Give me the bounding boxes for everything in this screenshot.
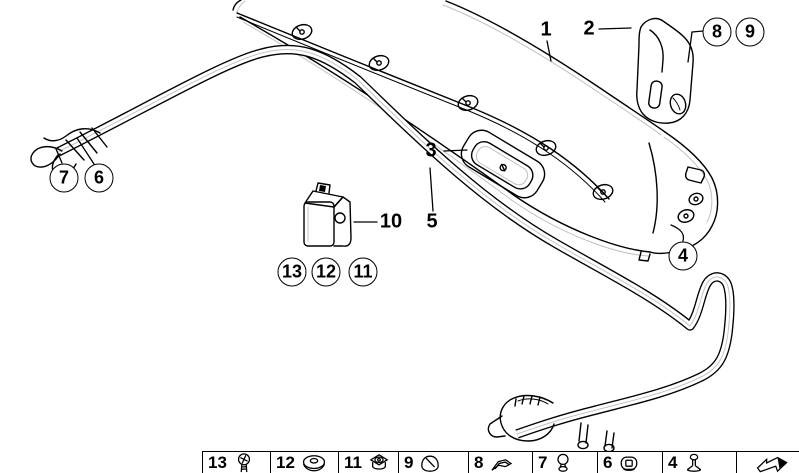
clip-cap-icon xyxy=(417,453,443,473)
push-rivet-icon xyxy=(681,453,707,473)
legend-cell-4[interactable]: 4 xyxy=(662,452,736,473)
callout-circle-9[interactable]: 9 xyxy=(736,18,765,47)
legend-cell-8[interactable]: 8 xyxy=(468,452,532,473)
callout-circle-8[interactable]: 8 xyxy=(703,18,732,47)
callout-circle-4[interactable]: 4 xyxy=(669,242,698,271)
parts-diagram-page: 1 2 3 5 10 7 6 8 9 13 12 11 4 13 12 11 xyxy=(0,0,799,473)
parts-drawing xyxy=(0,0,799,473)
legend-number: 4 xyxy=(663,453,677,472)
legend-number: 7 xyxy=(533,453,547,472)
legend-number: 9 xyxy=(399,453,413,472)
legend-cell-9[interactable]: 9 xyxy=(398,452,468,473)
flange-nut-icon xyxy=(366,453,392,473)
seal-leg-shapes xyxy=(578,423,614,452)
washer-icon xyxy=(299,453,329,473)
legend-cell-12[interactable]: 12 xyxy=(270,452,338,473)
callout-circle-6[interactable]: 6 xyxy=(85,164,114,193)
callout-2[interactable]: 2 xyxy=(583,18,594,41)
bracket-shape xyxy=(637,19,693,124)
legend-cell-11[interactable]: 11 xyxy=(338,452,398,473)
callout-circle-7[interactable]: 7 xyxy=(50,164,79,193)
legend-number: 13 xyxy=(203,453,227,472)
callout-10[interactable]: 10 xyxy=(380,211,402,234)
cap-nut-icon xyxy=(616,453,642,473)
direction-arrow-icon xyxy=(746,453,799,473)
legend-number: 11 xyxy=(339,453,362,472)
sheet-clip-icon xyxy=(487,453,515,473)
legend-cell-7[interactable]: 7 xyxy=(532,452,597,473)
callout-5[interactable]: 5 xyxy=(426,211,437,234)
callout-1[interactable]: 1 xyxy=(540,19,551,42)
fastener-legend: 13 12 11 9 xyxy=(202,451,799,473)
callout-circle-12[interactable]: 12 xyxy=(312,258,341,287)
clip-block-shape xyxy=(304,183,351,246)
callout-circle-13[interactable]: 13 xyxy=(278,258,307,287)
legend-cell-6[interactable]: 6 xyxy=(597,452,662,473)
legend-number: 8 xyxy=(469,453,483,472)
legend-cell-direction[interactable] xyxy=(736,452,799,473)
leader-lines xyxy=(56,28,703,241)
screw-icon xyxy=(231,453,257,473)
legend-number: 6 xyxy=(598,453,612,472)
ball-pin-icon xyxy=(551,453,575,473)
callout-3[interactable]: 3 xyxy=(425,140,436,163)
legend-cell-13[interactable]: 13 xyxy=(202,452,270,473)
callout-circle-11[interactable]: 11 xyxy=(349,258,378,287)
trim-panel-shape xyxy=(233,0,718,261)
legend-number: 12 xyxy=(271,453,295,472)
